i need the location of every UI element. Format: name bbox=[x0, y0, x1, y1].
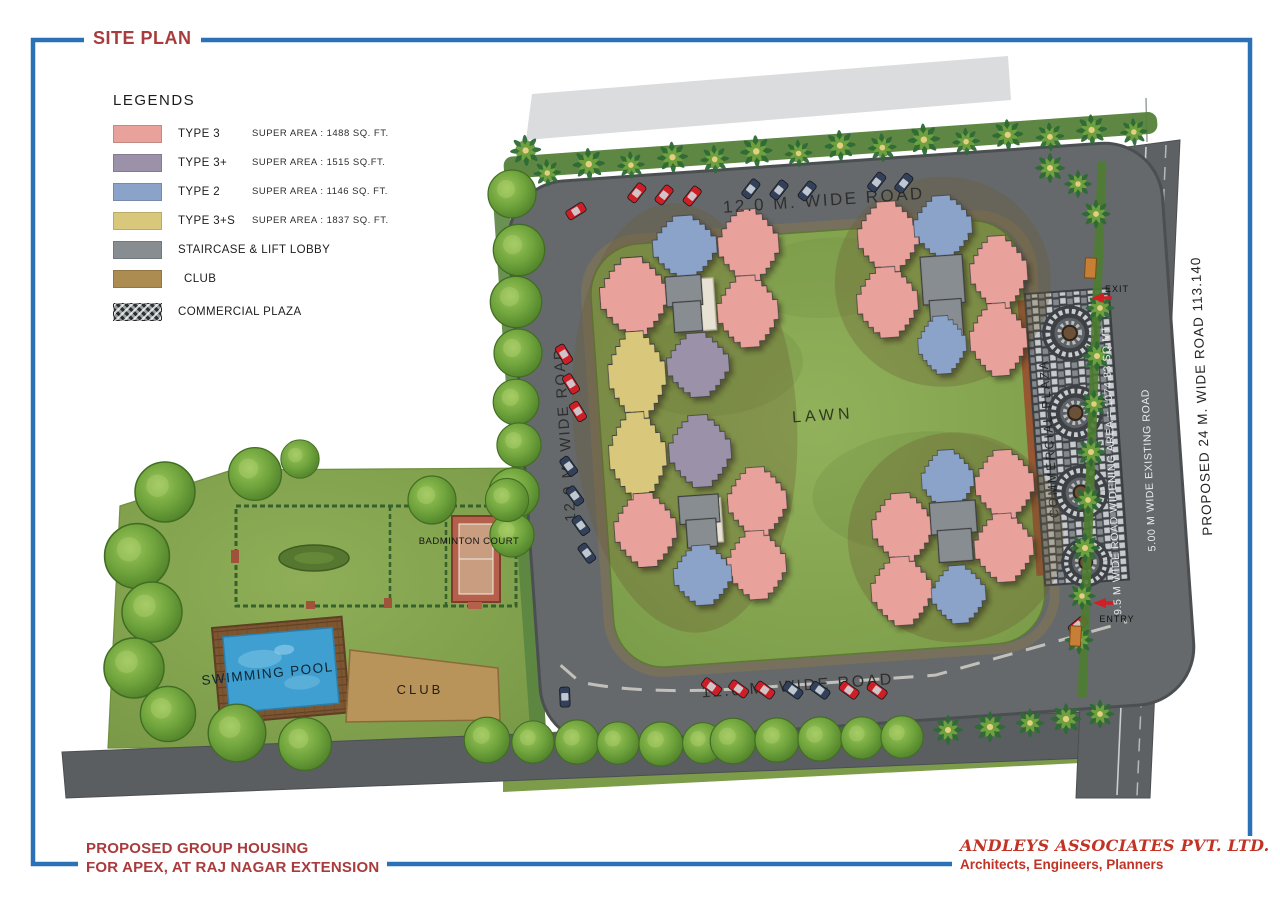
proposed-road-label: PROPOSED 24 M. WIDE ROAD 113.140 bbox=[1188, 256, 1215, 536]
legend-heading: LEGENDS bbox=[113, 92, 389, 109]
site-plan-page: COMMERCIAL PLAZA bbox=[0, 0, 1280, 904]
firm-name: ANDLEYS ASSOCIATES PVT. LTD. bbox=[960, 836, 1270, 856]
badminton-court-label: BADMINTON COURT bbox=[419, 536, 520, 547]
legend-row-staircase: STAIRCASE & LIFT LOBBY bbox=[113, 235, 389, 264]
legend-row-club: CLUB bbox=[113, 264, 389, 293]
club-swatch bbox=[113, 270, 162, 288]
project-title: PROPOSED GROUP HOUSING FOR APEX, AT RAJ … bbox=[78, 839, 387, 877]
firm-tagline: Architects, Engineers, Planners bbox=[960, 856, 1270, 873]
staircase-swatch bbox=[113, 241, 162, 259]
legend-label: TYPE 2 bbox=[178, 186, 252, 198]
legend-area: SUPER AREA : 1146 SQ. FT. bbox=[252, 186, 388, 197]
project-line1: PROPOSED GROUP HOUSING bbox=[86, 839, 379, 858]
type3-swatch bbox=[113, 125, 162, 143]
exit-label: EXIT bbox=[1105, 284, 1129, 294]
project-line2: FOR APEX, AT RAJ NAGAR EXTENSION bbox=[86, 858, 379, 877]
legend-label: COMMERCIAL PLAZA bbox=[178, 306, 302, 318]
legend-area: SUPER AREA : 1488 SQ. FT. bbox=[252, 128, 389, 139]
club-label: CLUB bbox=[397, 682, 444, 697]
legend-row-type3ps: TYPE 3+S SUPER AREA : 1837 SQ. FT. bbox=[113, 206, 389, 235]
firm-block: ANDLEYS ASSOCIATES PVT. LTD. Architects,… bbox=[952, 836, 1278, 873]
page-title: SITE PLAN bbox=[84, 28, 201, 49]
legend-label: TYPE 3 bbox=[178, 128, 252, 140]
commercial-plaza-swatch bbox=[113, 303, 162, 321]
legend-label: TYPE 3+ bbox=[178, 157, 252, 169]
legend-label: CLUB bbox=[178, 273, 216, 285]
legend-row-type2: TYPE 2 SUPER AREA : 1146 SQ. FT. bbox=[113, 177, 389, 206]
legend-row-commercial: COMMERCIAL PLAZA bbox=[113, 297, 389, 326]
legend-label: STAIRCASE & LIFT LOBBY bbox=[178, 244, 330, 256]
legend-row-type3plus: TYPE 3+ SUPER AREA : 1515 SQ.FT. bbox=[113, 148, 389, 177]
legend-area: SUPER AREA : 1837 SQ. FT. bbox=[252, 215, 389, 226]
legend-panel: LEGENDS TYPE 3 SUPER AREA : 1488 SQ. FT.… bbox=[113, 92, 389, 326]
legend-row-type3: TYPE 3 SUPER AREA : 1488 SQ. FT. bbox=[113, 119, 389, 148]
type3plus-swatch bbox=[113, 154, 162, 172]
type3ps-swatch bbox=[113, 212, 162, 230]
type2-swatch bbox=[113, 183, 162, 201]
legend-label: TYPE 3+S bbox=[178, 215, 252, 227]
legend-area: SUPER AREA : 1515 SQ.FT. bbox=[252, 157, 385, 168]
